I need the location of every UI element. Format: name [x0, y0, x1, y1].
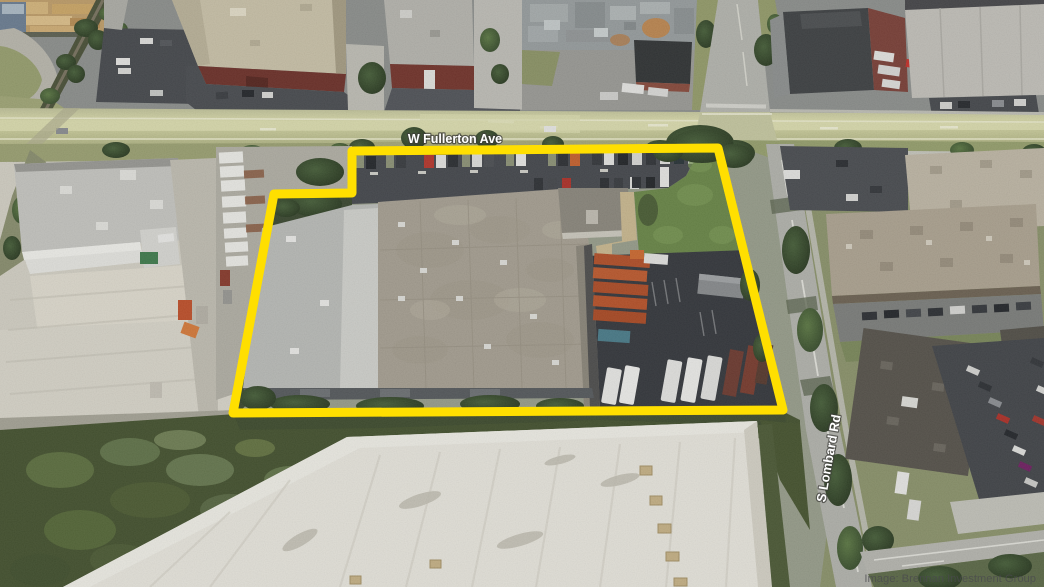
svg-text:W Fullerton Ave: W Fullerton Ave	[408, 132, 502, 146]
svg-text:Image: Brennan Investment Grou: Image: Brennan Investment Group	[864, 573, 1036, 585]
